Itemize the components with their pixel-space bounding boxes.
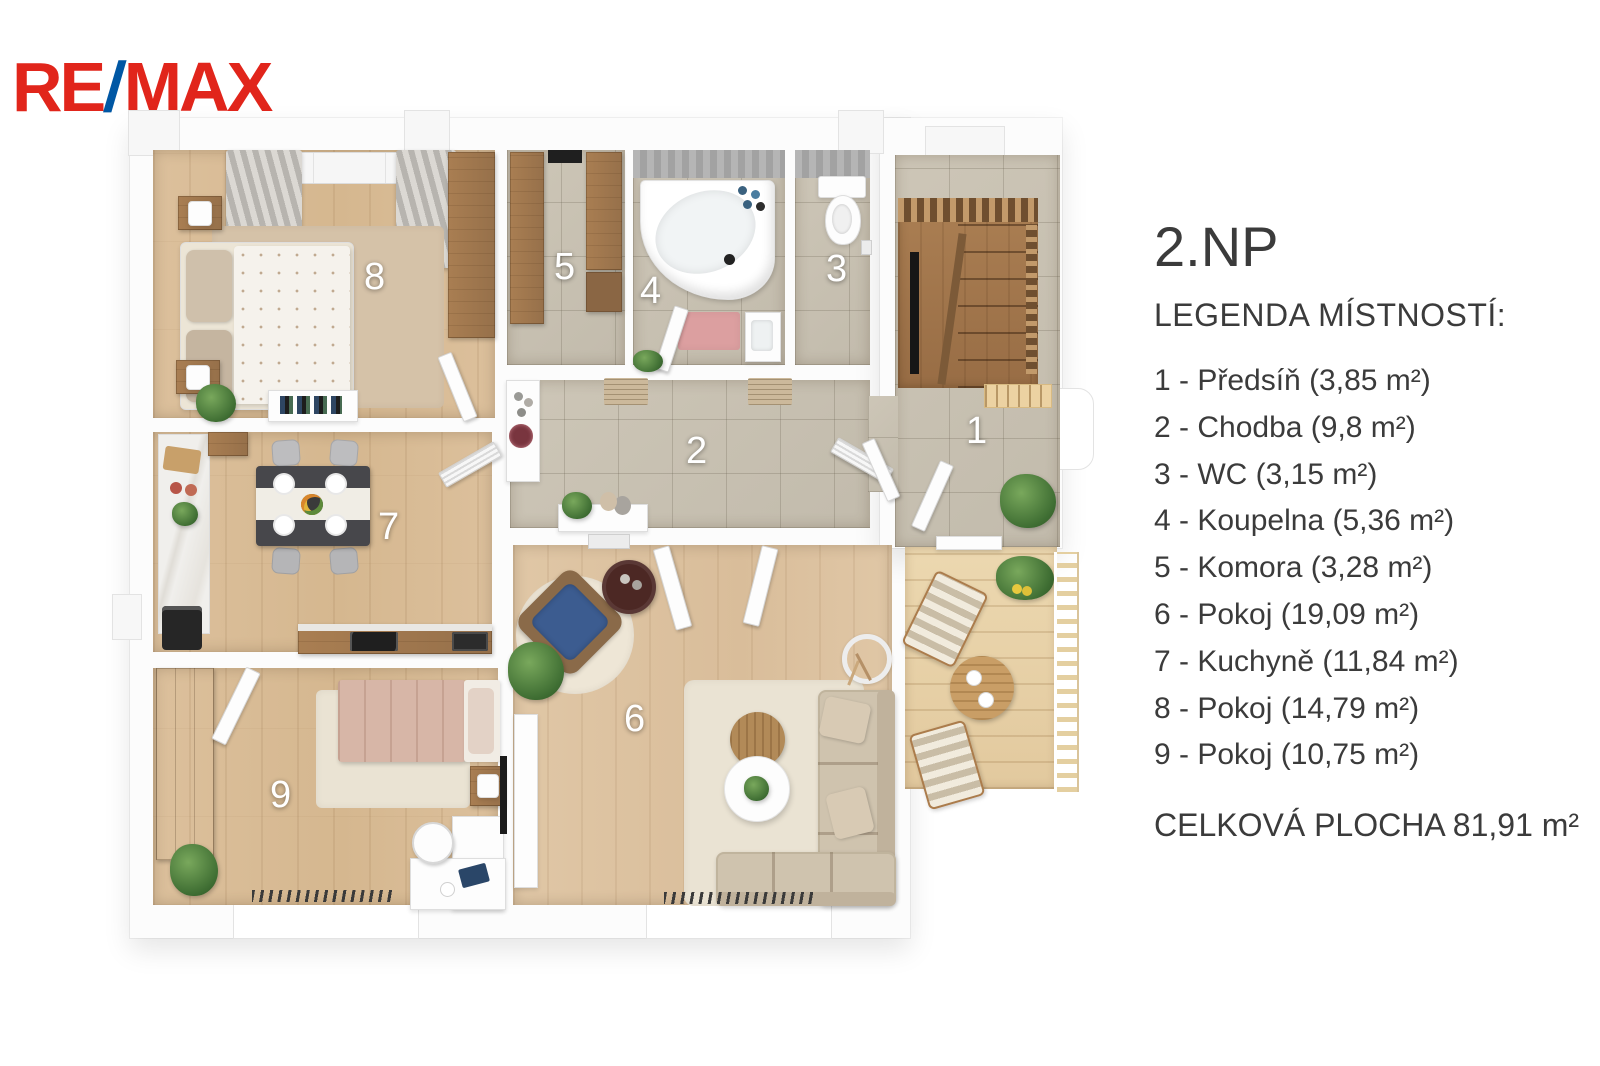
wc-wall-tiles [795, 150, 870, 178]
room-label-5: 5 [554, 246, 575, 289]
twig-vase [600, 492, 617, 511]
table-lamp [188, 201, 212, 226]
plant [196, 384, 236, 422]
floor-title: 2.NP [1154, 214, 1594, 279]
doormat [748, 378, 792, 405]
cutting-board [163, 446, 202, 475]
decor-vases [620, 574, 630, 584]
room-label-7: 7 [378, 506, 399, 549]
legend-room-item: 4 - Koupelna (5,36 m²) [1154, 498, 1594, 545]
storage-drawers [586, 272, 622, 312]
lemon-bowl [1012, 584, 1022, 594]
plant [633, 350, 663, 372]
terrace-railing [1054, 552, 1079, 792]
storage-cabinet [510, 152, 544, 324]
pillow [186, 250, 232, 322]
plant [170, 844, 218, 896]
wardrobe [448, 152, 495, 338]
jars [170, 482, 182, 494]
terrace-table [950, 656, 1014, 720]
toilet-paper-holder [861, 240, 872, 255]
desk-chair [412, 822, 454, 864]
cup [966, 670, 982, 686]
room-label-3: 3 [826, 248, 847, 291]
kitchen-sink [452, 632, 488, 651]
plate [327, 516, 345, 534]
bathroom-wall-tiles [633, 150, 785, 178]
plant [996, 556, 1054, 600]
cooktop [350, 632, 398, 651]
plate [327, 475, 345, 493]
stair-handrail-bottom [984, 384, 1052, 408]
dining-chair [329, 439, 359, 467]
bath-rug [678, 312, 740, 350]
pillow [468, 688, 494, 754]
room-label-9: 9 [270, 774, 291, 817]
toilet-seat [832, 204, 852, 234]
room-label-2: 2 [686, 430, 707, 473]
sofa-cushion-line [818, 762, 878, 765]
entry-door-right [1056, 388, 1094, 470]
wall-pillar [838, 110, 884, 154]
thermostat [588, 534, 630, 549]
room-label-1: 1 [966, 410, 987, 453]
window-bottom-room6 [646, 903, 832, 939]
legend-heading: LEGENDA MÍSTNOSTÍ: [1154, 297, 1594, 334]
wall-pillar [404, 110, 450, 154]
plant [562, 492, 592, 519]
stair-railing-side [1026, 224, 1037, 374]
window-bottom-room9 [233, 903, 419, 939]
storage-shelf [548, 150, 582, 163]
legend-room-item: 1 - Předsíň (3,85 m²) [1154, 358, 1594, 405]
kitchen-corner-cabinet [208, 432, 248, 456]
room-label-8: 8 [364, 256, 385, 299]
legend-room-item: 3 - WC (3,15 m²) [1154, 452, 1594, 499]
legend-room-item: 2 - Chodba (9,8 m²) [1154, 405, 1594, 452]
doormat [604, 378, 648, 405]
plate [275, 475, 293, 493]
stair-gap [910, 252, 919, 374]
room-label-4: 4 [640, 270, 661, 313]
window-kitchen-left [112, 594, 142, 640]
table-lamp [477, 774, 499, 798]
bathtub-drain [724, 254, 735, 265]
room-label-6: 6 [624, 698, 645, 741]
stair-railing-top [898, 198, 1038, 222]
duvet [234, 246, 350, 404]
floorplan-page: { "logo": { "re": "RE", "slash": "/", "m… [0, 0, 1600, 1066]
bed-blanket [338, 680, 466, 762]
plant [744, 776, 769, 801]
dining-chair [329, 547, 359, 575]
decor-vases [514, 392, 523, 401]
legend-room-list: 1 - Předsíň (3,85 m²)2 - Chodba (9,8 m²)… [1154, 358, 1594, 779]
sofa-cushion-line [772, 852, 775, 892]
cup [978, 692, 994, 708]
stair-niche [925, 126, 1005, 156]
sofa-cushion-line [830, 852, 833, 892]
dining-chair [271, 547, 301, 575]
legend-room-item: 5 - Komora (3,28 m²) [1154, 545, 1594, 592]
legend-room-item: 9 - Pokoj (10,75 m²) [1154, 732, 1594, 779]
dining-chair [271, 439, 301, 467]
terrace-threshold [936, 536, 1002, 550]
legend-room-item: 7 - Kuchyně (11,84 m²) [1154, 639, 1594, 686]
counter-edge [298, 624, 492, 631]
wardrobe [156, 668, 214, 860]
sink-basin [751, 320, 773, 351]
legend-panel: 2.NP LEGENDA MÍSTNOSTÍ: 1 - Předsíň (3,8… [1154, 200, 1594, 844]
legend-room-item: 8 - Pokoj (14,79 m²) [1154, 686, 1594, 733]
coffee-cup [440, 882, 455, 897]
plant [508, 642, 564, 700]
tv-screen [500, 756, 507, 834]
side-table-dark [602, 560, 656, 614]
tv-sideboard [514, 714, 538, 888]
storage-cabinet [586, 152, 622, 270]
desk [410, 858, 506, 910]
books [280, 396, 342, 414]
radiator [664, 892, 814, 904]
bath-accessories [738, 186, 747, 195]
palm-plant [1000, 474, 1056, 528]
radiator [252, 890, 392, 902]
plate [275, 516, 293, 534]
fruit-bowl [301, 494, 323, 515]
coffee-machine [162, 606, 202, 650]
total-area: CELKOVÁ PLOCHA 81,91 m² [1154, 807, 1594, 844]
flower-bowl [509, 424, 533, 448]
floor-plan-render: 1 2 3 4 5 6 7 8 9 [0, 0, 1100, 1066]
legend-room-item: 6 - Pokoj (19,09 m²) [1154, 592, 1594, 639]
plant [172, 502, 198, 526]
